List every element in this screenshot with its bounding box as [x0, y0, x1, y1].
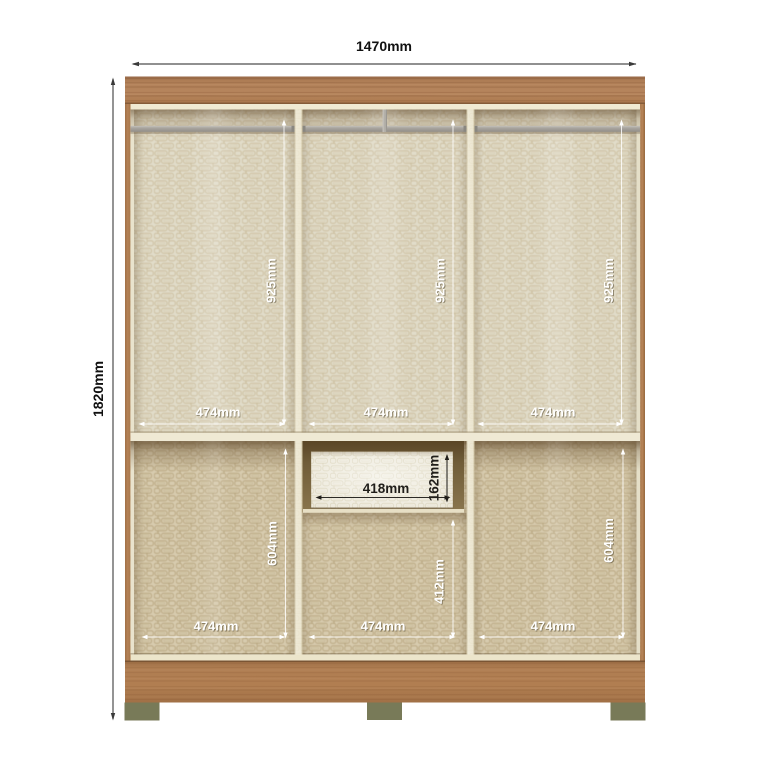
svg-text:604mm: 604mm [265, 521, 280, 566]
svg-text:412mm: 412mm [432, 559, 447, 604]
svg-text:925mm: 925mm [601, 258, 616, 303]
svg-text:474mm: 474mm [531, 619, 576, 634]
svg-text:1820mm: 1820mm [90, 361, 106, 417]
svg-text:925mm: 925mm [264, 258, 279, 303]
svg-text:474mm: 474mm [196, 405, 241, 420]
svg-text:925mm: 925mm [433, 258, 448, 303]
svg-text:474mm: 474mm [361, 619, 406, 634]
svg-text:1470mm: 1470mm [356, 38, 412, 54]
svg-text:474mm: 474mm [531, 405, 576, 420]
svg-text:162mm: 162mm [427, 455, 442, 502]
svg-text:604mm: 604mm [601, 518, 616, 563]
svg-text:474mm: 474mm [364, 405, 409, 420]
svg-text:474mm: 474mm [194, 619, 239, 634]
svg-text:418mm: 418mm [363, 481, 410, 496]
